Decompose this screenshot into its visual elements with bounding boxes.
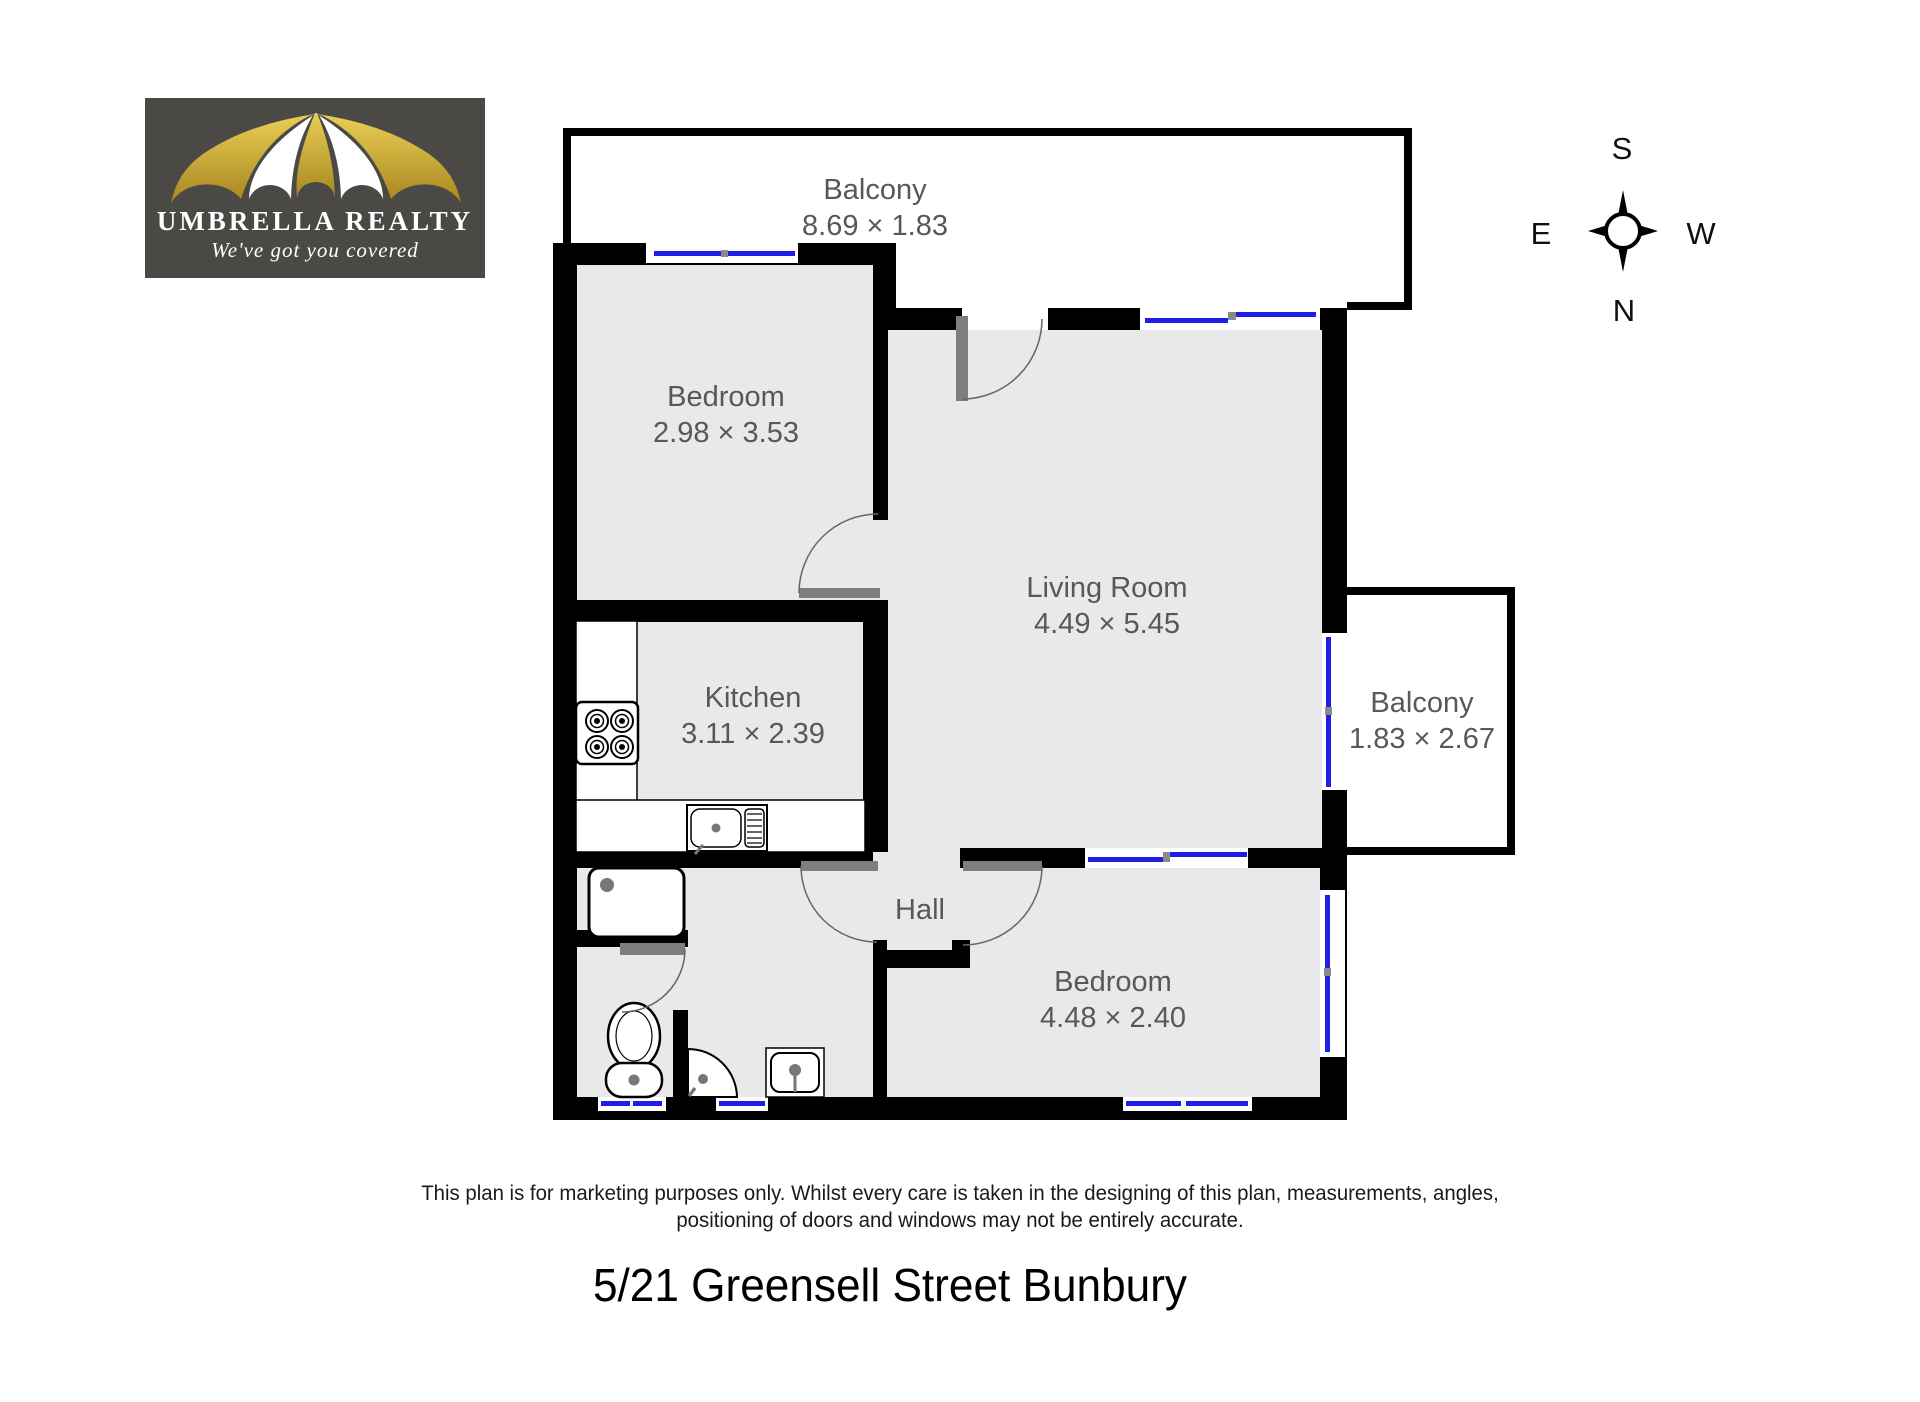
room-label-hall: Hall <box>895 892 945 928</box>
room-dimensions: 1.83 × 2.67 <box>1349 721 1495 757</box>
compass-north-label: N <box>1613 293 1635 329</box>
room-name: Bedroom <box>1040 964 1186 1000</box>
compass-icon <box>1560 160 1690 305</box>
compass-west-label: W <box>1686 216 1715 252</box>
room-dimensions: 3.11 × 2.39 <box>681 716 825 752</box>
kitchen-sink-icon <box>687 805 767 854</box>
property-address: 5/21 Greensell Street Bunbury <box>593 1258 1187 1312</box>
room-dimensions: 8.69 × 1.83 <box>802 208 948 244</box>
washing-machine-icon <box>589 868 684 937</box>
compass-east-label: E <box>1531 216 1552 252</box>
room-label-balcony-right: Balcony 1.83 × 2.67 <box>1349 685 1495 757</box>
room-label-bedroom-bottom: Bedroom 4.48 × 2.40 <box>1040 964 1186 1036</box>
room-dimensions: 4.48 × 2.40 <box>1040 1000 1186 1036</box>
floorplan-page: UMBRELLA REALTY We've got you covered S … <box>0 0 1920 1402</box>
room-dimensions: 4.49 × 5.45 <box>1026 606 1187 642</box>
stove-icon <box>576 702 638 764</box>
vanity-basin-icon <box>766 1048 824 1097</box>
logo-tagline: We've got you covered <box>145 238 485 263</box>
compass-south-label: S <box>1612 131 1633 167</box>
room-label-living-room: Living Room 4.49 × 5.45 <box>1026 570 1187 642</box>
room-name: Hall <box>895 892 945 928</box>
disclaimer-line-1: This plan is for marketing purposes only… <box>378 1180 1542 1207</box>
toilet-icon <box>606 1003 662 1097</box>
room-name: Balcony <box>802 172 948 208</box>
room-label-balcony-top: Balcony 8.69 × 1.83 <box>802 172 948 244</box>
logo-name: UMBRELLA REALTY <box>145 206 485 237</box>
room-name: Kitchen <box>681 680 825 716</box>
room-name: Balcony <box>1349 685 1495 721</box>
room-name: Living Room <box>1026 570 1187 606</box>
room-name: Bedroom <box>653 379 799 415</box>
disclaimer-line-2: positioning of doors and windows may not… <box>378 1207 1542 1234</box>
room-dimensions: 2.98 × 3.53 <box>653 415 799 451</box>
room-label-bedroom-top: Bedroom 2.98 × 3.53 <box>653 379 799 451</box>
umbrella-icon <box>145 98 485 208</box>
room-label-kitchen: Kitchen 3.11 × 2.39 <box>681 680 825 752</box>
agency-logo: UMBRELLA REALTY We've got you covered <box>145 98 485 278</box>
